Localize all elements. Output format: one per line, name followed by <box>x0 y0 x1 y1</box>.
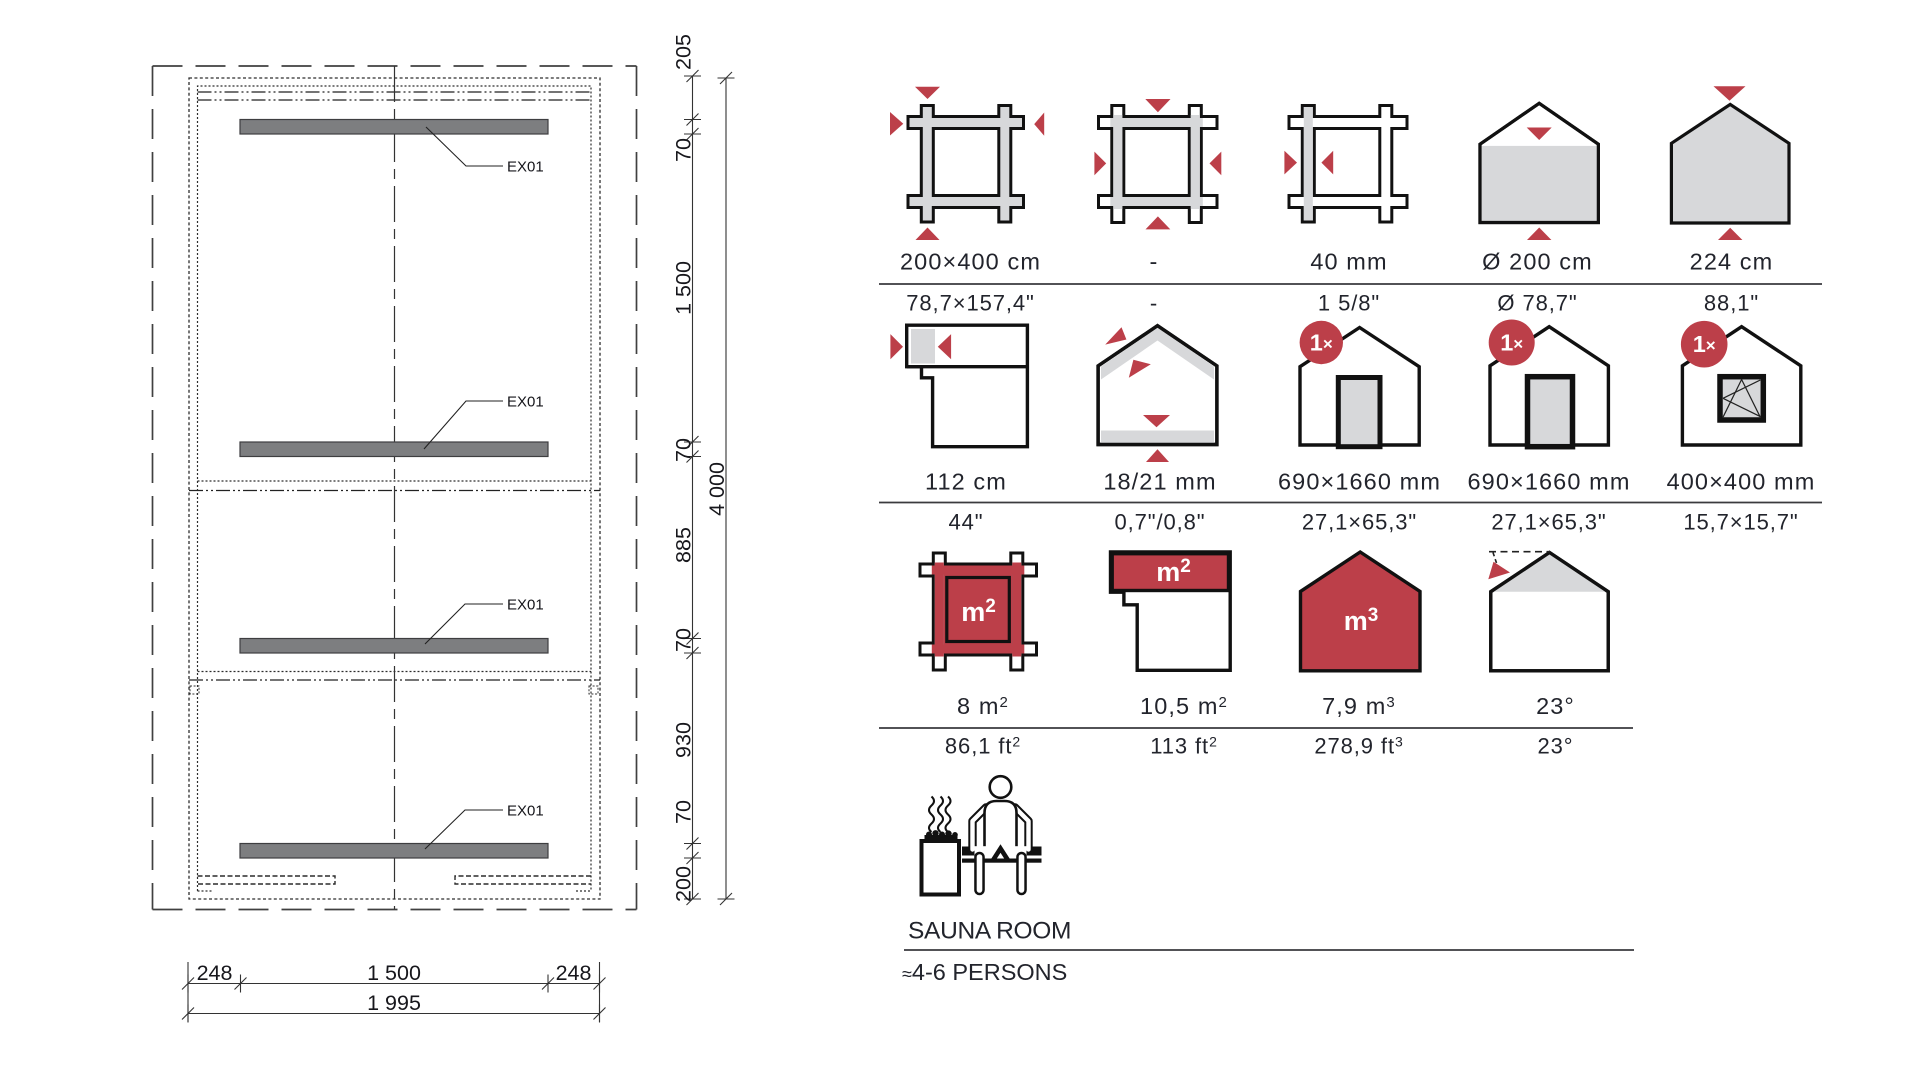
svg-text:690×1660 mm: 690×1660 mm <box>1468 469 1631 495</box>
svg-text:112 cm: 112 cm <box>925 469 1007 495</box>
svg-text:78,7×157,4": 78,7×157,4" <box>906 291 1034 316</box>
svg-text:≈4-6 PERSONS: ≈4-6 PERSONS <box>902 959 1067 985</box>
svg-text:88,1": 88,1" <box>1704 291 1759 316</box>
svg-text:1 5/8": 1 5/8" <box>1318 291 1380 316</box>
svg-text:400×400 mm: 400×400 mm <box>1667 469 1816 495</box>
svg-text:10,5 m2: 10,5 m2 <box>1140 693 1228 719</box>
svg-text:Ø 200 cm: Ø 200 cm <box>1482 249 1593 275</box>
svg-text:86,1 ft2: 86,1 ft2 <box>945 734 1021 759</box>
svg-text:44": 44" <box>949 510 984 535</box>
svg-text:27,1×65,3": 27,1×65,3" <box>1302 510 1417 535</box>
svg-text:15,7×15,7": 15,7×15,7" <box>1683 510 1798 535</box>
svg-text:18/21 mm: 18/21 mm <box>1103 469 1216 495</box>
svg-text:-: - <box>1150 249 1159 275</box>
svg-text:0,7"/0,8": 0,7"/0,8" <box>1115 510 1206 535</box>
svg-text:40 mm: 40 mm <box>1310 249 1387 275</box>
svg-text:278,9 ft3: 278,9 ft3 <box>1314 734 1403 759</box>
svg-text:7,9 m3: 7,9 m3 <box>1322 693 1396 719</box>
svg-text:200×400 cm: 200×400 cm <box>900 249 1041 275</box>
svg-text:224 cm: 224 cm <box>1690 249 1774 275</box>
svg-text:27,1×65,3": 27,1×65,3" <box>1491 510 1606 535</box>
svg-text:690×1660 mm: 690×1660 mm <box>1278 469 1441 495</box>
svg-text:23°: 23° <box>1536 693 1575 719</box>
svg-text:23°: 23° <box>1538 734 1574 759</box>
svg-text:-: - <box>1150 291 1158 316</box>
svg-text:SAUNA ROOM: SAUNA ROOM <box>908 918 1071 945</box>
svg-text:113 ft2: 113 ft2 <box>1150 734 1218 759</box>
svg-text:Ø 78,7": Ø 78,7" <box>1497 291 1577 316</box>
svg-text:8 m2: 8 m2 <box>957 693 1009 719</box>
